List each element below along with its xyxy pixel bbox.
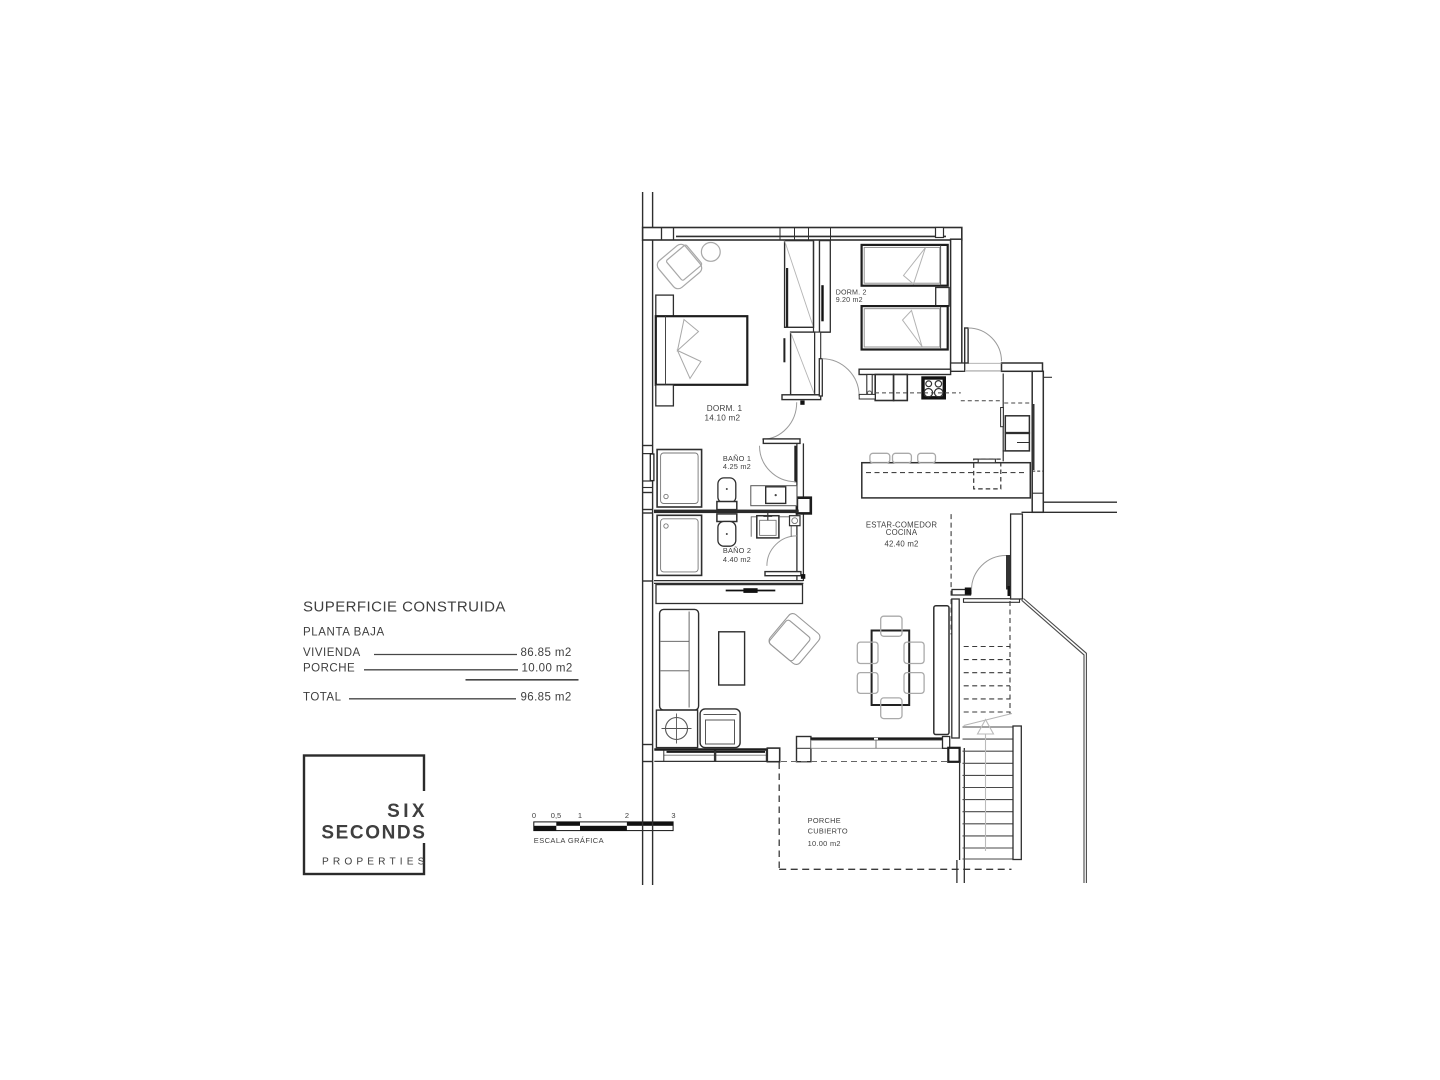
svg-text:14.10 m2: 14.10 m2	[705, 414, 741, 423]
svg-text:SECONDS: SECONDS	[321, 823, 426, 844]
svg-text:SUPERFICIE CONSTRUIDA: SUPERFICIE CONSTRUIDA	[303, 599, 506, 616]
svg-text:42.40 m2: 42.40 m2	[884, 540, 918, 549]
svg-text:3: 3	[671, 811, 675, 820]
svg-text:0: 0	[532, 811, 536, 820]
svg-text:PLANTA BAJA: PLANTA BAJA	[303, 627, 385, 639]
svg-text:9.20 m2: 9.20 m2	[836, 296, 863, 304]
svg-text:4.40 m2: 4.40 m2	[723, 555, 751, 564]
svg-text:10.00 m2: 10.00 m2	[808, 839, 841, 848]
svg-text:TOTAL: TOTAL	[303, 691, 342, 703]
svg-text:SIX: SIX	[387, 801, 428, 822]
svg-text:4.25 m2: 4.25 m2	[723, 462, 751, 471]
svg-text:COCINA: COCINA	[886, 528, 918, 537]
svg-text:1: 1	[578, 811, 582, 820]
svg-text:10.00 m2: 10.00 m2	[522, 662, 573, 674]
svg-text:86.85 m2: 86.85 m2	[521, 647, 572, 659]
svg-text:PORCHE: PORCHE	[303, 662, 355, 674]
svg-text:CUBIERTO: CUBIERTO	[808, 826, 848, 835]
svg-text:2: 2	[625, 811, 629, 820]
svg-text:PROPERTIES: PROPERTIES	[322, 857, 428, 868]
svg-text:PORCHE: PORCHE	[808, 816, 841, 825]
svg-text:96.85 m2: 96.85 m2	[521, 691, 572, 703]
svg-text:VIVIENDA: VIVIENDA	[303, 647, 361, 659]
svg-text:ESCALA GRÁFICA: ESCALA GRÁFICA	[534, 836, 604, 845]
svg-text:DORM. 1: DORM. 1	[707, 404, 743, 413]
svg-text:0,5: 0,5	[551, 811, 561, 820]
